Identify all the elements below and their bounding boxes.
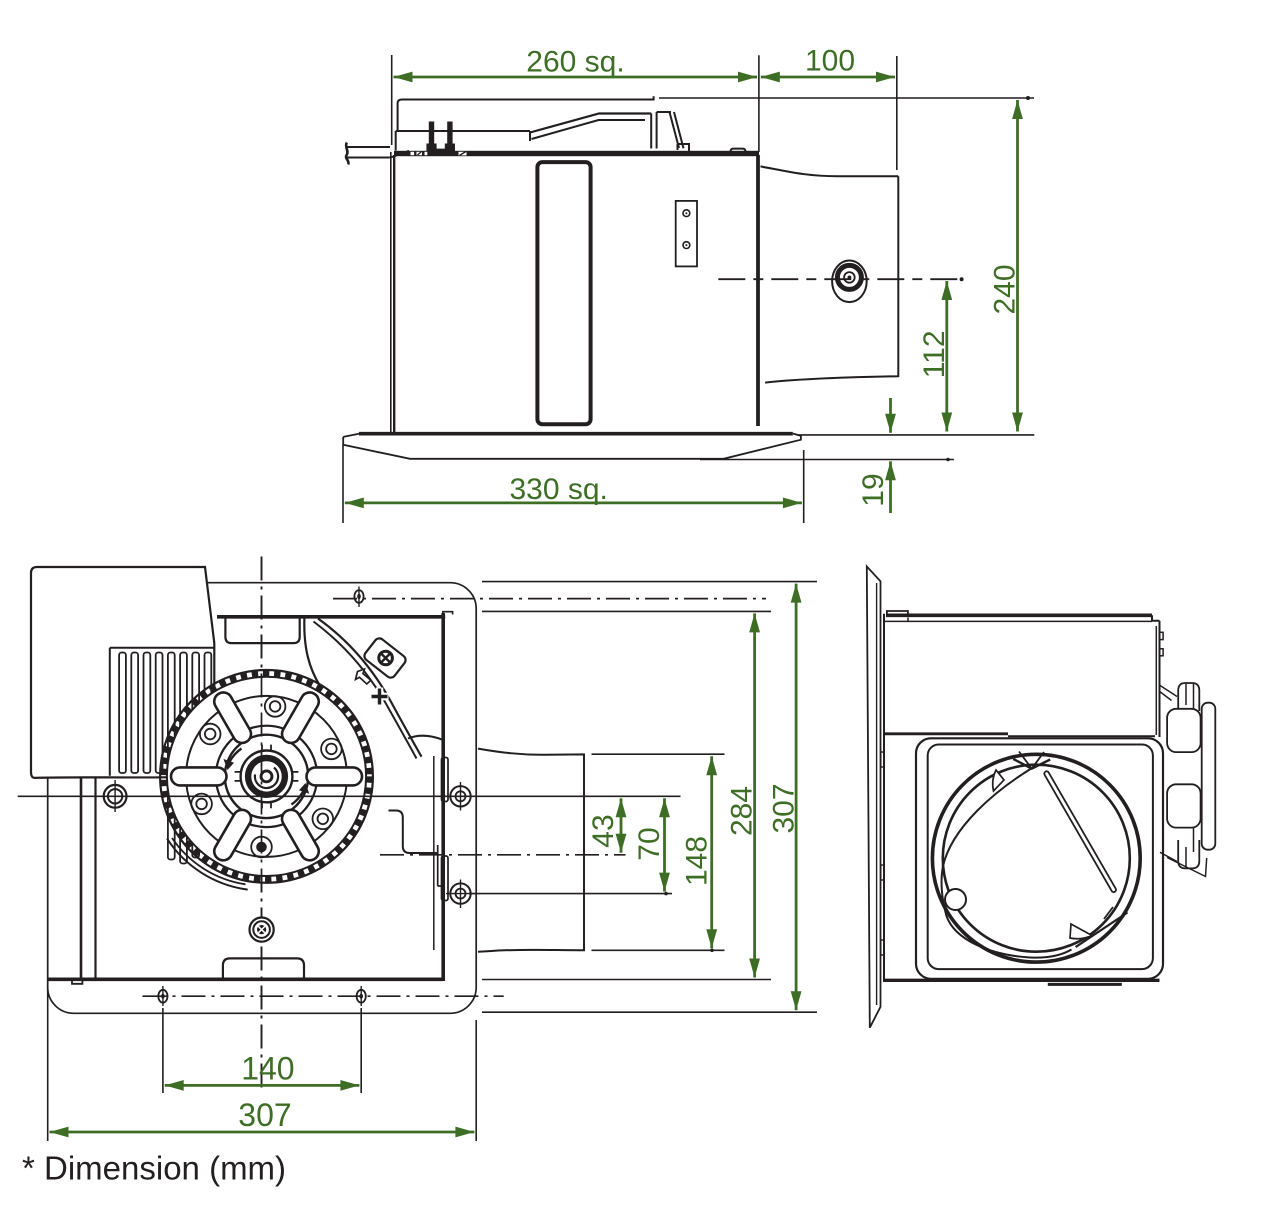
svg-text:330 sq.: 330 sq. — [509, 473, 607, 506]
svg-text:307: 307 — [767, 783, 800, 833]
svg-text:* Dimension (mm): * Dimension (mm) — [22, 1150, 286, 1187]
svg-text:19: 19 — [857, 473, 890, 506]
svg-text:140: 140 — [241, 1051, 294, 1087]
svg-text:260 sq.: 260 sq. — [526, 46, 624, 79]
svg-text:43: 43 — [587, 814, 620, 847]
svg-text:70: 70 — [633, 827, 666, 860]
svg-text:307: 307 — [238, 1097, 291, 1133]
svg-text:112: 112 — [918, 330, 951, 378]
svg-text:100: 100 — [805, 45, 855, 78]
svg-text:148: 148 — [681, 836, 714, 886]
svg-text:284: 284 — [726, 786, 759, 836]
svg-text:240: 240 — [989, 264, 1022, 314]
